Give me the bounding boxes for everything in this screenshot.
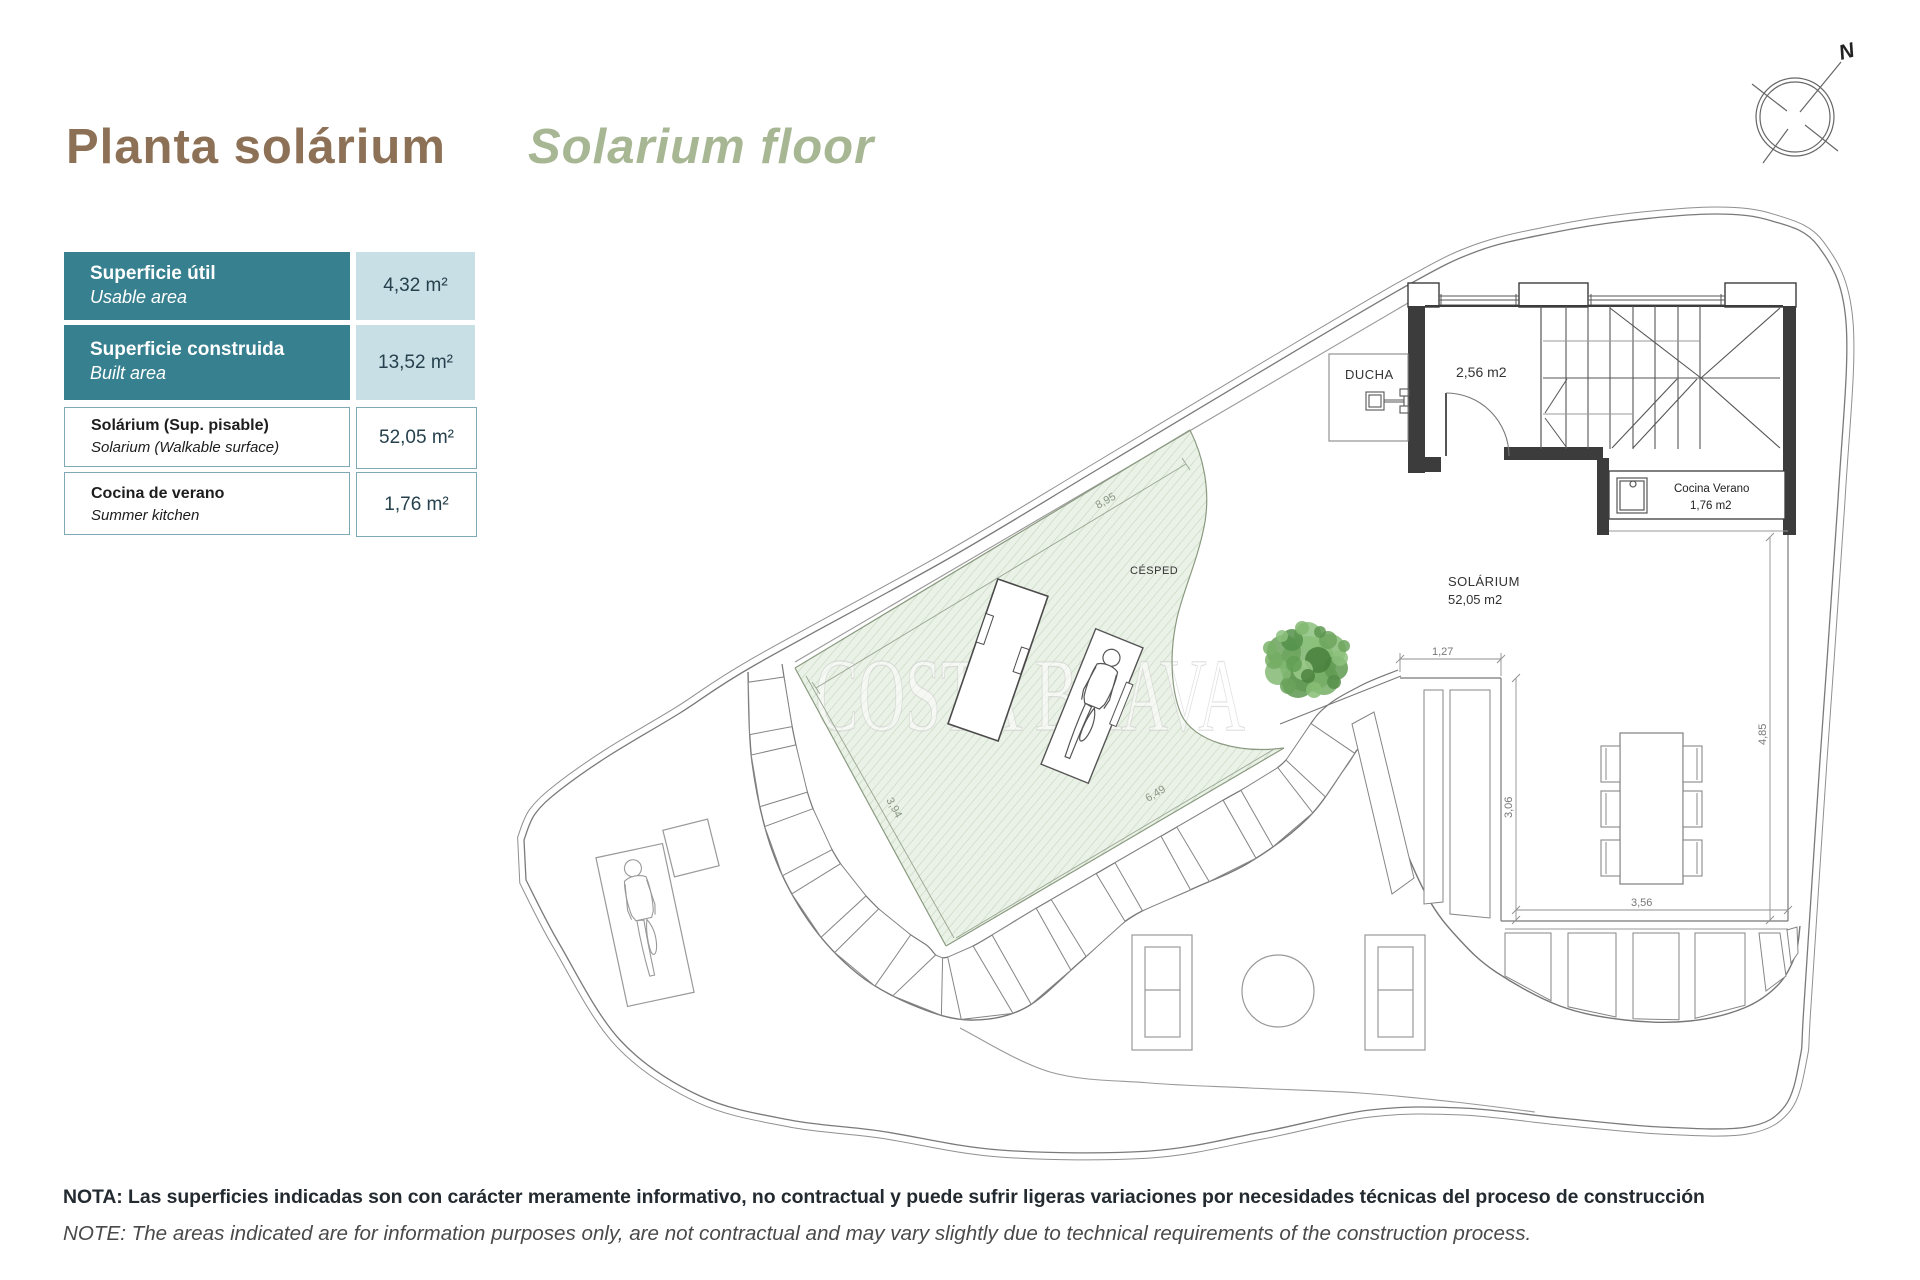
svg-text:3,06: 3,06 (1503, 797, 1515, 818)
svg-text:CÉSPED: CÉSPED (1130, 564, 1178, 577)
svg-text:1,76 m2: 1,76 m2 (1690, 500, 1732, 512)
svg-text:SOLÁRIUM: SOLÁRIUM (1448, 574, 1520, 589)
svg-text:DUCHA: DUCHA (1345, 367, 1394, 382)
svg-text:COSTA BRAVA: COSTA BRAVA (815, 638, 1245, 753)
svg-text:3,56: 3,56 (1631, 897, 1652, 909)
svg-text:52,05 m2: 52,05 m2 (1448, 592, 1502, 607)
svg-text:Cocina Verano: Cocina Verano (1674, 483, 1749, 495)
svg-text:1,27: 1,27 (1432, 646, 1453, 658)
svg-text:4,85: 4,85 (1757, 724, 1769, 745)
svg-text:N: N (1836, 38, 1857, 64)
svg-text:2,56 m2: 2,56 m2 (1456, 364, 1507, 380)
